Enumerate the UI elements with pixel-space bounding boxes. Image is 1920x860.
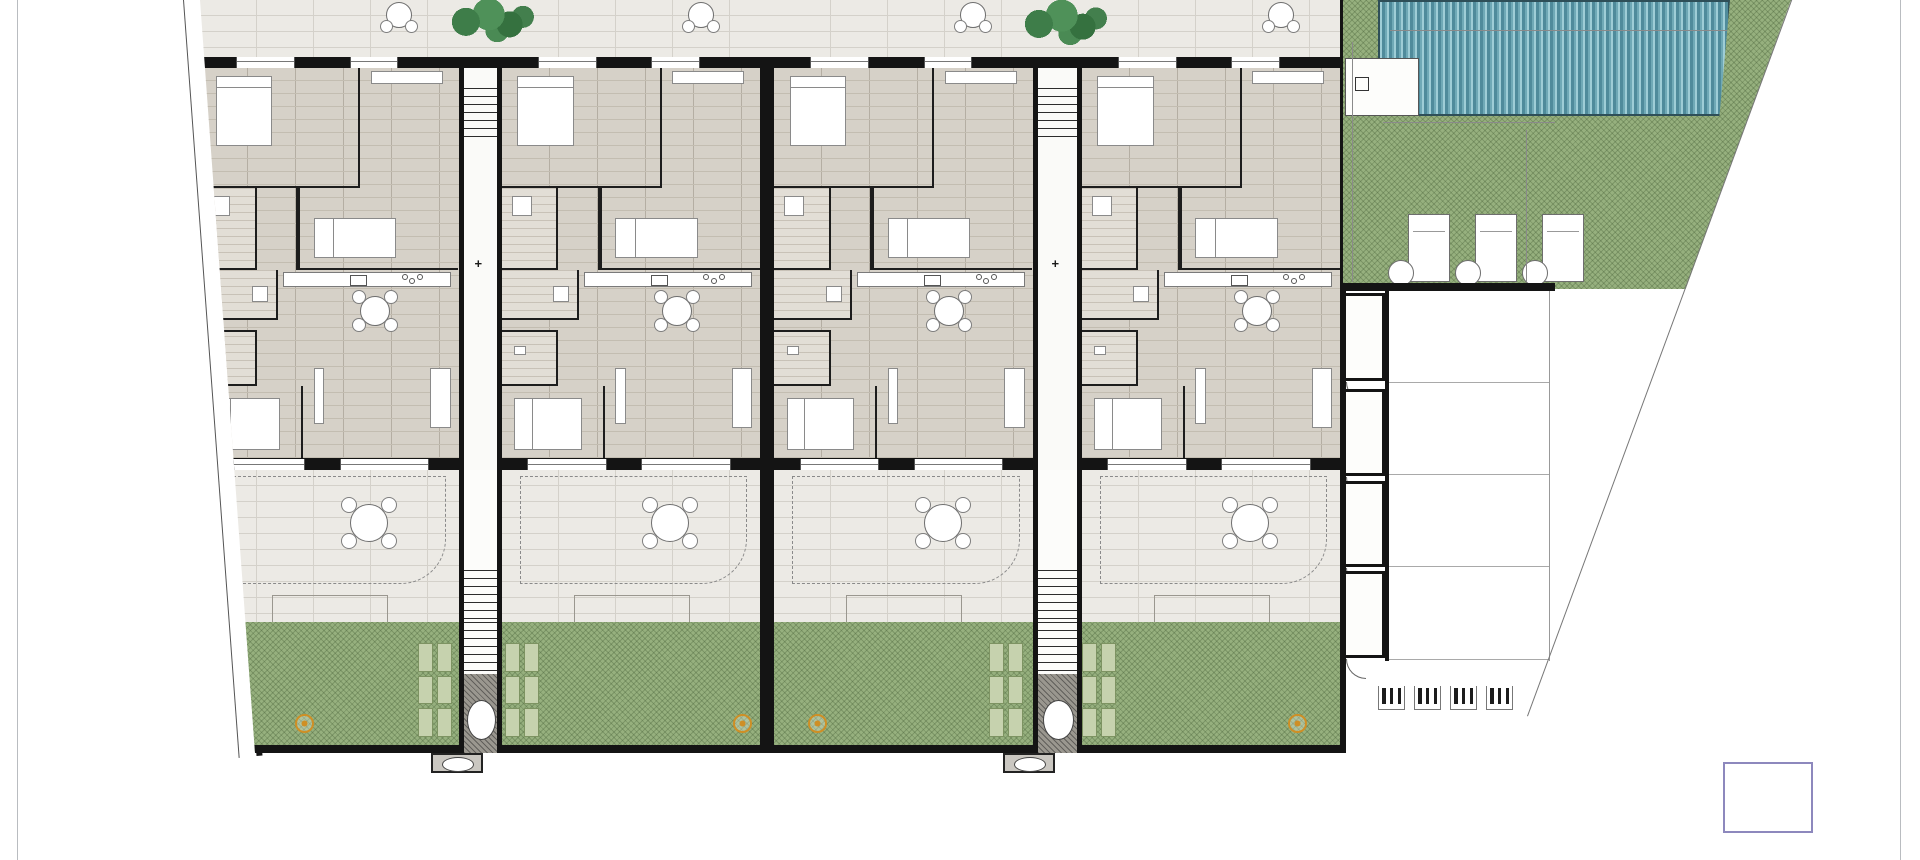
utility-marker-icon — [1288, 714, 1307, 733]
parking-stalls — [1385, 291, 1550, 661]
washer-icon — [826, 286, 842, 302]
trastero-box — [1343, 293, 1385, 381]
window-icon — [924, 57, 973, 68]
stair-treads-icon — [464, 88, 497, 144]
planter-grid — [415, 640, 455, 740]
pillow-icon — [1097, 76, 1154, 88]
party-wall — [760, 0, 774, 753]
pillow-icon — [216, 76, 273, 88]
stair-treads-icon — [1038, 88, 1077, 144]
sofa-icon — [1312, 368, 1333, 428]
building-block: + — [200, 0, 1346, 753]
swimming-pool — [1378, 0, 1730, 116]
sofa-icon — [732, 368, 753, 428]
room-distribuidor — [257, 188, 298, 270]
patio-area — [200, 0, 459, 57]
room-distribuidor — [1138, 188, 1179, 270]
wall — [1343, 283, 1555, 291]
pillow-icon — [888, 218, 909, 258]
sofa-icon — [430, 368, 451, 428]
porche-dashed-zone — [520, 476, 747, 584]
dimension-line — [1352, 42, 1353, 282]
tree-icon — [1018, 0, 1113, 46]
tv-bench-icon — [1195, 368, 1205, 424]
trastero-box — [1343, 481, 1385, 567]
window-icon — [350, 57, 399, 68]
wall — [760, 57, 774, 753]
stair-treads-icon — [464, 622, 497, 674]
trastero-pair — [1033, 470, 1082, 622]
utility-marker-icon — [733, 714, 752, 733]
sink-icon — [1231, 275, 1248, 286]
porche-dashed-zone — [792, 476, 1019, 584]
planter-grid — [1079, 640, 1119, 740]
bike-rack-icon — [1378, 686, 1405, 710]
toilet-icon — [213, 346, 225, 355]
facade-wall-rear — [1082, 57, 1341, 68]
pillow-icon — [615, 218, 636, 258]
unit — [1082, 0, 1341, 753]
dimension-line — [1526, 130, 1527, 282]
pool-shower-room — [1345, 58, 1419, 116]
porche-step — [1154, 595, 1270, 622]
window-icon — [651, 57, 700, 68]
page-frame-right — [1900, 0, 1901, 860]
porche-area — [200, 470, 459, 622]
pillow-icon — [517, 76, 574, 88]
wardrobe-icon — [371, 71, 443, 84]
parking-stall — [1389, 567, 1549, 660]
facade-wall-rear — [774, 57, 1033, 68]
facade-wall-rear — [502, 57, 761, 68]
stove-icon — [711, 278, 717, 284]
window-icon — [1231, 57, 1280, 68]
porche-dashed-zone — [1100, 476, 1327, 584]
planter-grid — [986, 640, 1026, 740]
entry-oval — [467, 700, 496, 740]
window-icon — [236, 57, 295, 68]
shower-icon — [1092, 196, 1112, 216]
porche-step — [574, 595, 690, 622]
utility-marker-icon — [808, 714, 827, 733]
pillow-icon — [1094, 398, 1112, 450]
window-icon — [1118, 57, 1177, 68]
parking-stall — [1389, 475, 1549, 567]
wardrobe-icon — [672, 71, 744, 84]
unit-interior — [200, 68, 459, 470]
corridor-garden-shaft — [1033, 622, 1082, 753]
corridor-shaft: + — [1033, 68, 1082, 470]
tree-icon — [445, 0, 540, 42]
utility-marker-icon — [295, 714, 314, 733]
patio-area — [1082, 0, 1341, 57]
window-icon — [810, 57, 869, 68]
parking-stall — [1389, 383, 1549, 475]
room-distribuidor — [558, 188, 599, 270]
immomas-logo — [1723, 762, 1813, 833]
bike-rack-icon — [1414, 686, 1441, 710]
room-distribuidor — [831, 188, 872, 270]
corridor-garden-shaft — [459, 622, 502, 753]
dimension-line — [1390, 30, 1727, 31]
tv-bench-icon — [615, 368, 625, 424]
wardrobe-icon — [1252, 71, 1324, 84]
window-icon — [538, 57, 597, 68]
sink-icon — [350, 275, 367, 286]
washer-icon — [553, 286, 569, 302]
stove-icon — [1299, 274, 1305, 280]
unit-interior — [1082, 68, 1341, 470]
unit-interior — [774, 68, 1033, 470]
wall — [459, 57, 502, 68]
porche-area — [502, 470, 761, 622]
pillow-icon — [1195, 218, 1216, 258]
pillow-icon — [790, 76, 847, 88]
tv-bench-icon — [888, 368, 898, 424]
porche-step — [272, 595, 388, 622]
stair-exit — [431, 753, 483, 773]
washer-icon — [252, 286, 268, 302]
trastero-pair — [459, 470, 502, 622]
room-bano-1 — [774, 330, 831, 386]
toilet-icon — [514, 346, 526, 355]
stove-icon — [719, 274, 725, 280]
bed-icon — [213, 398, 280, 450]
porche-dashed-zone — [218, 476, 445, 584]
stove-icon — [1291, 278, 1297, 284]
dimension-line — [1383, 122, 1555, 123]
wardrobe-icon — [945, 71, 1017, 84]
wall — [1033, 57, 1082, 68]
bike-rack-icon — [1486, 686, 1513, 710]
unit-interior — [502, 68, 761, 470]
facade-wall-rear — [200, 57, 459, 68]
stair-treads-icon — [1038, 570, 1077, 622]
stove-icon — [402, 274, 408, 280]
toilet-icon — [1094, 346, 1106, 355]
entry-oval — [1043, 700, 1074, 740]
shower-icon — [1355, 77, 1369, 91]
trastero-box — [1343, 571, 1385, 658]
room-bano-1 — [502, 330, 559, 386]
page-frame-left — [17, 0, 18, 860]
stair-treads-icon — [1038, 622, 1077, 674]
stove-icon — [976, 274, 982, 280]
stair-cross-icon: + — [475, 256, 483, 271]
stair-cross-icon: + — [1052, 256, 1060, 271]
room-bano-1 — [1082, 330, 1139, 386]
parking-stall — [1389, 291, 1549, 383]
planter-grid — [502, 640, 542, 740]
pillow-icon — [314, 218, 335, 258]
pillow-icon — [514, 398, 532, 450]
porche-area — [774, 470, 1033, 622]
bike-rack-icon — [1450, 686, 1477, 710]
patio-area — [774, 0, 1033, 57]
shower-icon — [512, 196, 532, 216]
front-garden — [1082, 622, 1341, 753]
sofa-icon — [1004, 368, 1025, 428]
toilet-icon — [787, 346, 799, 355]
stair-treads-icon — [464, 570, 497, 622]
trastero-box — [1343, 389, 1385, 476]
corridor-shaft: + — [459, 68, 502, 470]
shower-icon — [784, 196, 804, 216]
pillow-icon — [787, 398, 805, 450]
porche-step — [846, 595, 962, 622]
patio-area — [502, 0, 761, 57]
tv-bench-icon — [314, 368, 324, 424]
sink-icon — [924, 275, 941, 286]
shower-icon — [210, 196, 230, 216]
washer-icon — [1133, 286, 1149, 302]
patio-area — [760, 0, 774, 57]
stair-corridor-2: + — [1033, 0, 1082, 753]
door-arc-icon — [1346, 659, 1366, 679]
sink-icon — [651, 275, 668, 286]
porche-area — [1082, 470, 1341, 622]
stair-exit — [1003, 753, 1055, 773]
floor-plan-canvas: + — [0, 0, 1920, 860]
stair-corridor-1: + — [459, 0, 502, 753]
